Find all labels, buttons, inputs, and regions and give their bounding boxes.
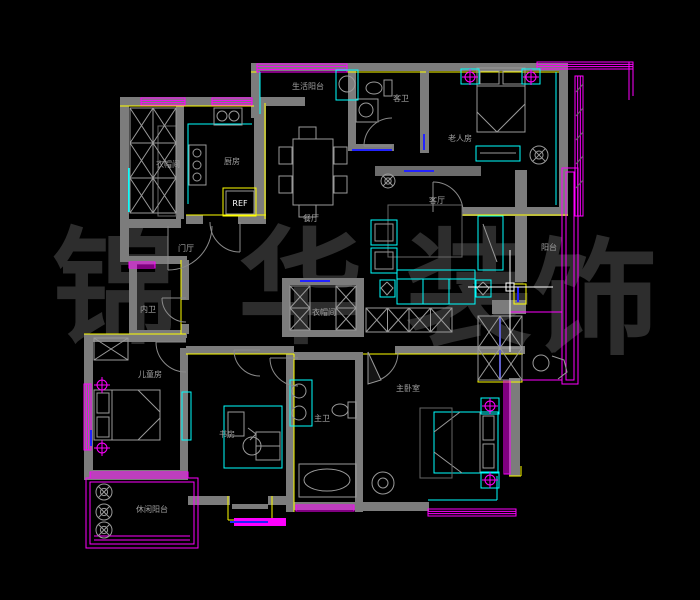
door-swing [162, 298, 186, 322]
wall [282, 330, 364, 337]
line [434, 412, 460, 432]
line [576, 180, 583, 188]
furniture [193, 173, 201, 181]
furniture [366, 82, 382, 94]
fridge-label: REF [232, 199, 248, 208]
furniture [477, 68, 525, 132]
furniture [375, 252, 393, 269]
room-label: 主卫 [314, 413, 330, 423]
room-label: 客厅 [429, 195, 445, 205]
furniture [97, 417, 109, 437]
furniture [193, 161, 201, 169]
room-label: 阳台 [541, 242, 557, 252]
wall [509, 378, 520, 476]
wall [181, 324, 189, 334]
furniture [378, 478, 388, 488]
furniture [372, 472, 394, 494]
window [428, 509, 516, 516]
furniture [94, 390, 160, 440]
line [576, 84, 583, 92]
wall [186, 215, 203, 224]
furniture [480, 71, 499, 84]
room-label: 衣帽间 [156, 159, 180, 169]
polyline [188, 124, 252, 204]
line [483, 224, 497, 262]
room-label: 客卫 [393, 93, 409, 103]
wall [356, 278, 364, 336]
furniture [217, 111, 227, 121]
line [138, 418, 160, 440]
wall [180, 348, 188, 480]
line [576, 132, 583, 140]
room-label: 休闲阳台 [136, 504, 168, 514]
wall [395, 346, 525, 354]
line [434, 452, 462, 473]
line [497, 104, 525, 132]
wall [286, 352, 294, 512]
wall [282, 278, 290, 336]
wall [120, 97, 129, 228]
room-label: 生活阳台 [292, 81, 324, 91]
line [576, 108, 583, 116]
room-label: 餐厅 [303, 214, 319, 223]
wall [251, 63, 260, 118]
room-label: 儿童房 [138, 369, 162, 379]
door-swing [210, 222, 240, 252]
furniture [97, 393, 109, 413]
furniture [279, 147, 292, 164]
floorplan-canvas: 锦华装饰 衣帽间厨房生活阳台客卫老人房餐厅客厅阳台门厅内卫衣帽间儿童房书房主卫主… [0, 0, 700, 600]
polyline [368, 352, 381, 384]
line [138, 390, 160, 412]
wall [181, 260, 189, 300]
room-label: 厨房 [224, 156, 240, 166]
furniture [348, 402, 356, 418]
furniture [483, 416, 494, 440]
polyline [552, 356, 567, 379]
wall [515, 170, 527, 282]
furniture [420, 408, 452, 478]
furniture [332, 404, 348, 416]
floorplan-drawing: 衣帽间厨房生活阳台客卫老人房餐厅客厅阳台门厅内卫衣帽间儿童房书房主卫主卧室休闲阳… [0, 0, 700, 600]
furniture [304, 469, 350, 491]
wall [120, 219, 181, 228]
furniture [299, 127, 316, 139]
furniture [533, 355, 549, 371]
polyline [248, 428, 256, 440]
furniture [279, 176, 292, 193]
furniture [334, 176, 347, 193]
room-label: 主卧室 [396, 383, 420, 393]
furniture [189, 145, 206, 185]
room-label: 内卫 [140, 304, 156, 314]
wall [232, 504, 268, 509]
furniture [193, 149, 201, 157]
polyline [477, 282, 489, 295]
line [576, 156, 583, 164]
room-label: 门厅 [178, 243, 194, 253]
furniture [214, 108, 242, 125]
wall [129, 256, 187, 264]
furniture [384, 80, 392, 96]
wall [363, 502, 429, 511]
furniture [434, 412, 498, 473]
room-label: 衣帽间 [312, 307, 336, 317]
furniture [375, 224, 393, 241]
furniture [334, 147, 347, 164]
furniture [388, 205, 462, 257]
room-label: 书房 [219, 429, 235, 439]
furniture [503, 71, 522, 84]
wall [292, 352, 358, 360]
wall [559, 63, 568, 213]
line [477, 112, 497, 132]
room-label: 老人房 [448, 133, 472, 143]
window [575, 76, 583, 216]
furniture [229, 111, 239, 121]
furniture [359, 103, 373, 117]
furniture [397, 270, 475, 304]
furniture [293, 139, 333, 205]
furniture [483, 444, 494, 468]
polyline [381, 282, 393, 295]
wall [120, 226, 129, 262]
